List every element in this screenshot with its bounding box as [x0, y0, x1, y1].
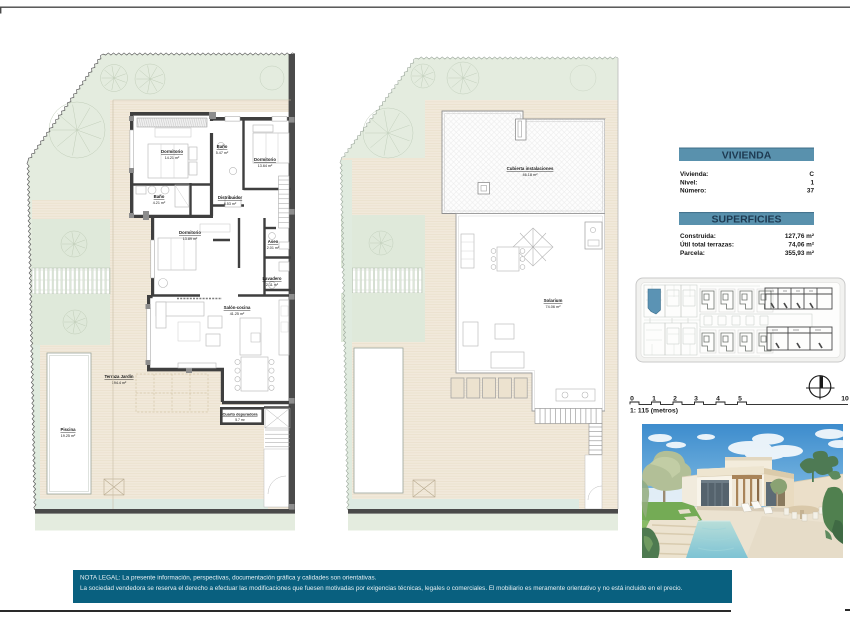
svg-text:Lavadero: Lavadero — [262, 276, 281, 281]
svg-text:Dormitorio: Dormitorio — [254, 157, 276, 162]
svg-text:37: 37 — [807, 188, 815, 195]
svg-text:13.64 m²: 13.64 m² — [258, 164, 273, 168]
svg-text:Salón-cocina: Salón-cocina — [224, 305, 251, 310]
svg-text:41.25 m²: 41.25 m² — [230, 312, 245, 316]
svg-text:La sociedad vendedora se reser: La sociedad vendedora se reserva el dere… — [80, 585, 683, 592]
svg-text:NOTA LEGAL: La presente inform: NOTA LEGAL: La presente información, per… — [80, 575, 377, 582]
svg-text:Nivel:: Nivel: — [680, 179, 697, 186]
svg-text:355,93 m²: 355,93 m² — [785, 250, 814, 257]
svg-text:1: 1 — [810, 179, 814, 186]
svg-text:13.89 m²: 13.89 m² — [183, 237, 198, 241]
svg-text:194.4 m²: 194.4 m² — [112, 381, 127, 385]
svg-text:5.47 m²: 5.47 m² — [216, 151, 229, 155]
svg-text:Aseo: Aseo — [268, 239, 279, 244]
svg-text:2: 2 — [673, 395, 677, 402]
svg-text:C: C — [809, 171, 814, 178]
svg-text:Piscina: Piscina — [60, 427, 76, 432]
svg-text:127,76 m²: 127,76 m² — [785, 233, 814, 240]
svg-text:6.53 m²: 6.53 m² — [224, 202, 237, 206]
svg-text:2.01 m²: 2.01 m² — [267, 246, 280, 250]
svg-text:Cubierta instalaciones: Cubierta instalaciones — [507, 166, 554, 171]
svg-text:10: 10 — [841, 395, 849, 402]
svg-text:74.06 m²: 74.06 m² — [546, 305, 562, 309]
svg-text:5.7 m²: 5.7 m² — [235, 418, 245, 422]
svg-text:Dormitorio: Dormitorio — [161, 149, 183, 154]
svg-text:0: 0 — [630, 395, 634, 402]
svg-text:Construida:: Construida: — [680, 233, 716, 240]
svg-text:VIVIENDA: VIVIENDA — [722, 149, 772, 161]
svg-text:1: 115 (metros): 1: 115 (metros) — [630, 408, 678, 415]
svg-text:Baño: Baño — [154, 194, 165, 199]
svg-text:Vivienda:: Vivienda: — [680, 171, 708, 178]
svg-text:19.25 m²: 19.25 m² — [61, 434, 76, 438]
svg-text:Parcela:: Parcela: — [680, 250, 705, 257]
svg-text:4: 4 — [716, 395, 720, 402]
svg-text:Baño: Baño — [217, 144, 228, 149]
svg-text:Solarium: Solarium — [544, 298, 563, 303]
svg-text:SUPERFICIES: SUPERFICIES — [711, 214, 781, 226]
svg-text:3: 3 — [694, 395, 698, 402]
svg-text:Útil total terrazas:: Útil total terrazas: — [680, 240, 734, 249]
svg-text:5: 5 — [738, 395, 742, 402]
svg-text:14.21 m²: 14.21 m² — [165, 156, 180, 160]
svg-text:74,06 m²: 74,06 m² — [788, 242, 814, 249]
svg-text:Número:: Número: — [680, 188, 706, 195]
svg-text:Dormitorio: Dormitorio — [179, 230, 201, 235]
svg-text:Terraza Jardín: Terraza Jardín — [104, 374, 133, 379]
svg-text:46.18 m²: 46.18 m² — [523, 173, 539, 177]
svg-text:1: 1 — [652, 395, 656, 402]
svg-text:2.11 m²: 2.11 m² — [266, 283, 279, 287]
svg-text:Distribuidor: Distribuidor — [218, 195, 243, 200]
svg-text:4.21 m²: 4.21 m² — [153, 201, 166, 205]
svg-text:Cuarto depuradora: Cuarto depuradora — [222, 412, 258, 417]
